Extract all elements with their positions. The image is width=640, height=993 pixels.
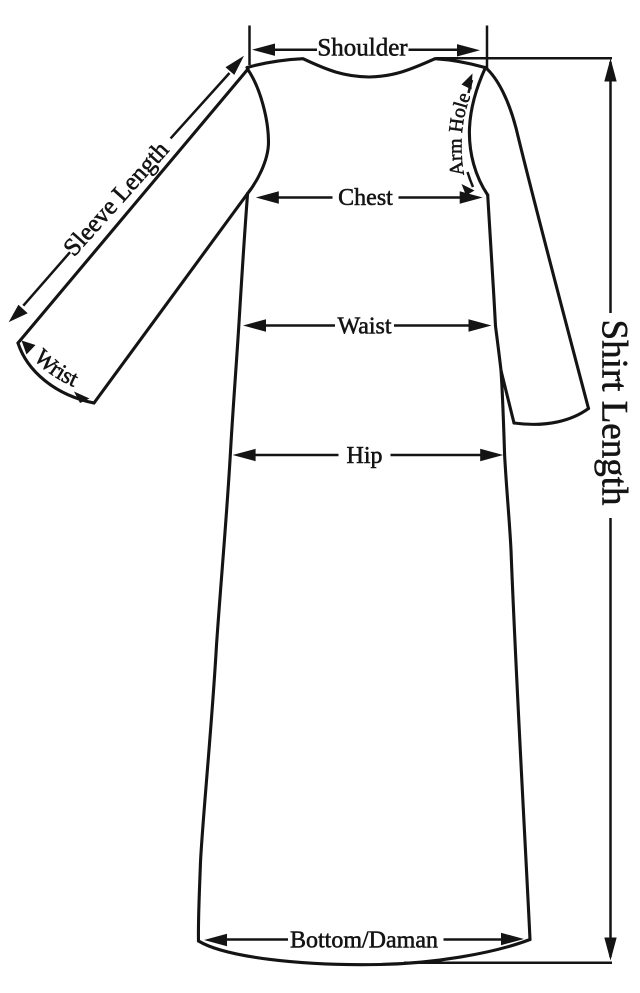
- svg-text:Shoulder: Shoulder: [317, 34, 408, 61]
- svg-text:Shirt Length: Shirt Length: [594, 319, 635, 506]
- svg-text:Hip: Hip: [347, 443, 383, 469]
- svg-text:Bottom/Daman: Bottom/Daman: [290, 927, 438, 953]
- svg-text:Waist: Waist: [337, 313, 391, 339]
- svg-text:Chest: Chest: [338, 185, 393, 211]
